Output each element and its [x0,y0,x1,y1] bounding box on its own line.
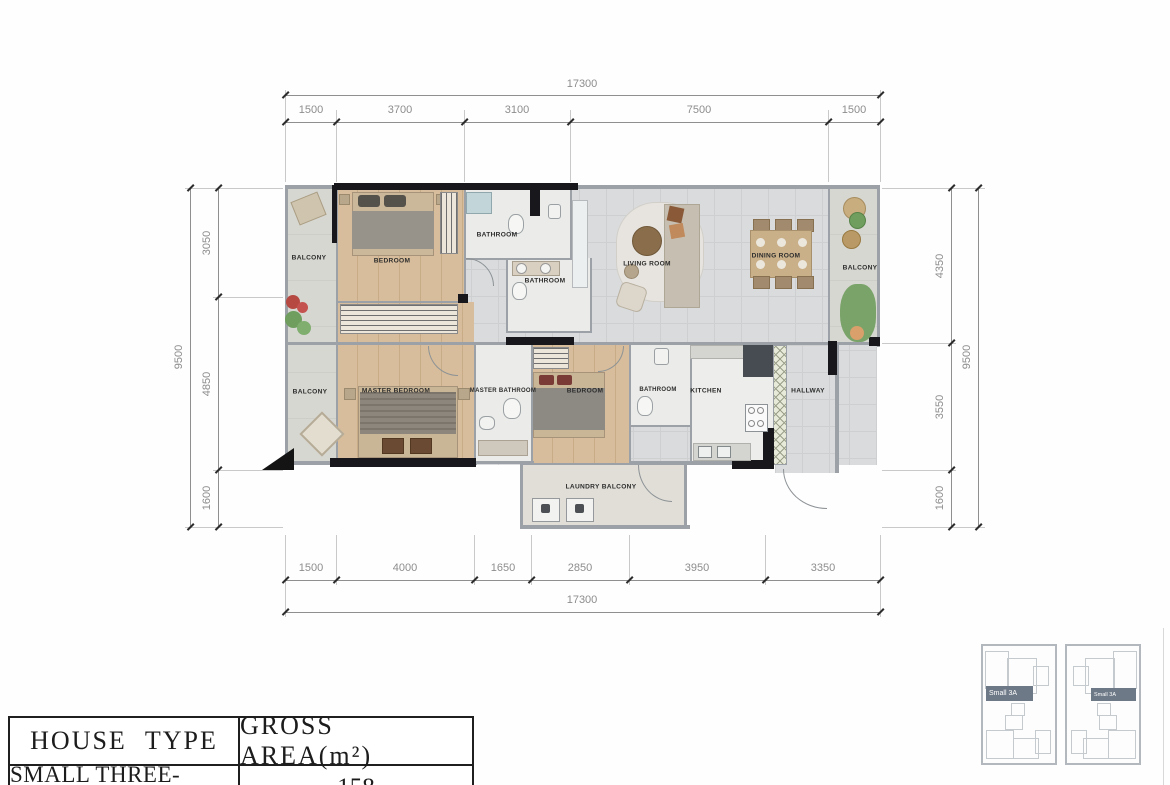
dim-label: 17300 [565,594,600,606]
highlighted-unit: Small 3A [986,686,1033,701]
house-type-table: HOUSE TYPE GROSS AREA(m²) SMALL THREE-BE… [8,716,474,785]
dim-label: 1600 [934,486,946,510]
pillow [358,195,380,207]
dim-label: 3100 [503,104,531,116]
room-label-balcony-right: BALCONY [843,265,878,272]
dim-label: 1500 [840,104,868,116]
blanket [352,211,434,249]
dim-label: 4000 [391,562,419,574]
plant-flower [850,326,864,340]
dim-bottom-seg-line [285,580,880,581]
sink [698,446,712,458]
gross-area-header: GROSS AREA(m²) [240,718,472,764]
room-label-living: LIVING ROOM [623,261,671,268]
sink [548,204,561,219]
wardrobe [340,304,458,334]
house-type-header: HOUSE TYPE [10,718,240,764]
plate [798,238,807,247]
nightstand [339,194,350,205]
coffee-table [632,226,662,256]
room-label-laundry: LAUNDRY BALCONY [566,484,637,491]
toilet [503,398,521,419]
toilet [637,396,653,416]
basket [842,230,861,249]
room-label-bedroom2: BEDROOM [567,388,604,395]
table-row: SMALL THREE-BEDROOM-A 158 [10,766,472,785]
pillow [557,375,572,385]
sofa-pillow [667,206,685,224]
pillow [384,195,406,207]
plate [756,260,765,269]
sink [479,416,495,430]
sink [654,348,669,365]
plate [777,238,786,247]
dim-label: 3550 [934,395,946,419]
dim-label: 1500 [297,104,325,116]
dim-label: 7500 [685,104,713,116]
entry-door-arc [783,469,827,509]
shower [466,192,492,214]
dining-chair [753,276,770,289]
floor-plan-sheet: 17300 1500 3700 3100 7500 1500 1500 4000… [0,0,1170,785]
burner [748,420,755,427]
burner [757,407,764,414]
key-plan-right: Small 3A [1065,644,1141,765]
highlighted-unit: Small 3A [1091,688,1136,701]
dim-label: 4350 [934,254,946,278]
dim-right-seg-line [951,188,952,527]
plate [777,260,786,269]
wardrobe [440,192,458,254]
shaft-column [773,345,787,465]
room-label-bedroom1: BEDROOM [374,258,411,265]
dim-label: 9500 [173,345,185,369]
washer-door [575,504,584,513]
dim-label: 4850 [201,372,213,396]
kitchen-corner-counter [743,345,773,377]
house-type-value: SMALL THREE-BEDROOM-A [10,766,240,785]
kitchen-counter [690,345,745,359]
plant [849,212,866,229]
pillow [539,375,554,385]
sink [516,263,527,274]
dim-left-seg-line [218,188,219,527]
page-edge-line [1163,628,1164,785]
key-plan-left: Small 3A [981,644,1057,765]
plate [798,260,807,269]
foyer-cabinet [572,200,588,288]
washer-door [541,504,550,513]
flower [297,302,308,313]
dim-left-total-line [190,188,191,527]
dim-label: 1650 [489,562,517,574]
room-label-master-bedroom: MASTER BEDROOM [362,388,430,395]
sink [717,446,731,458]
dim-top-seg-line [285,122,880,123]
dim-label: 9500 [961,345,973,369]
room-label-balcony-mid-left: BALCONY [293,389,328,396]
room-label-bathroom2: BATHROOM [525,278,566,285]
nightstand [458,388,470,400]
room-label-hallway: HALLWAY [791,388,825,395]
stool [410,438,432,454]
room-label-dining: DINING ROOM [752,253,801,260]
dim-label: 3350 [809,562,837,574]
dining-chair [775,276,792,289]
room-label-master-bathroom: MASTER BATHROOM [470,388,536,394]
burner [757,420,764,427]
room-label-kitchen: KITCHEN [690,388,721,395]
dim-label: 1500 [297,562,325,574]
blanket [360,392,456,434]
sink [540,263,551,274]
dim-label: 2850 [566,562,594,574]
burner [748,407,755,414]
dim-label: 3950 [683,562,711,574]
room-label-bathroom1: BATHROOM [477,232,518,239]
stool [382,438,404,454]
room-label-balcony-top-left: BALCONY [292,255,327,262]
nightstand [344,388,356,400]
room-label-bathroom3: BATHROOM [639,387,676,393]
table-header-row: HOUSE TYPE GROSS AREA(m²) [10,718,472,766]
gross-area-value: 158 [240,766,472,785]
dim-bottom-total-line [285,612,880,613]
dim-label: 3050 [201,231,213,255]
dim-right-total-line [978,188,979,527]
sofa-pillow [669,223,685,239]
wardrobe [533,347,569,369]
toilet [512,282,527,300]
dining-chair [797,276,814,289]
dim-top-total-line [285,95,880,96]
vanity [478,440,528,456]
plant [297,321,311,335]
dim-label: 3700 [386,104,414,116]
dim-label: 1600 [201,486,213,510]
dim-label: 17300 [565,78,600,90]
plate [756,238,765,247]
